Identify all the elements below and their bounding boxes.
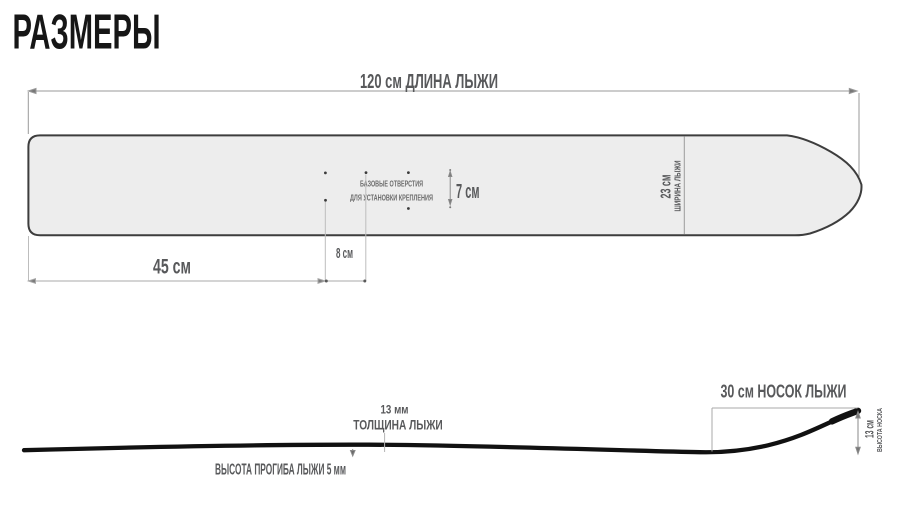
svg-text:ШИРИНА ЛЫЖИ: ШИРИНА ЛЫЖИ bbox=[673, 161, 683, 212]
svg-text:120 см ДЛИНА ЛЫЖИ: 120 см ДЛИНА ЛЫЖИ bbox=[360, 71, 498, 93]
svg-text:ТОЛЩИНА ЛЫЖИ: ТОЛЩИНА ЛЫЖИ bbox=[353, 417, 443, 433]
svg-text:30 см НОСОК ЛЫЖИ: 30 см НОСОК ЛЫЖИ bbox=[721, 381, 847, 402]
svg-text:ДЛЯ УСТАНОВКИ КРЕПЛЕНИЯ: ДЛЯ УСТАНОВКИ КРЕПЛЕНИЯ bbox=[350, 192, 433, 202]
svg-text:7 см: 7 см bbox=[456, 180, 480, 203]
svg-text:РАЗМЕРЫ: РАЗМЕРЫ bbox=[13, 4, 161, 59]
svg-text:13 мм: 13 мм bbox=[381, 403, 409, 417]
svg-text:ВЫСОТА НОСКА: ВЫСОТА НОСКА bbox=[875, 408, 884, 452]
svg-text:БАЗОВЫЕ ОТВЕРСТИЯ: БАЗОВЫЕ ОТВЕРСТИЯ bbox=[360, 178, 423, 188]
svg-text:8 см: 8 см bbox=[336, 246, 353, 262]
svg-text:ВЫСОТА ПРОГИБА ЛЫЖИ 5 мм: ВЫСОТА ПРОГИБА ЛЫЖИ 5 мм bbox=[215, 462, 346, 479]
svg-text:45 см: 45 см bbox=[153, 256, 191, 279]
